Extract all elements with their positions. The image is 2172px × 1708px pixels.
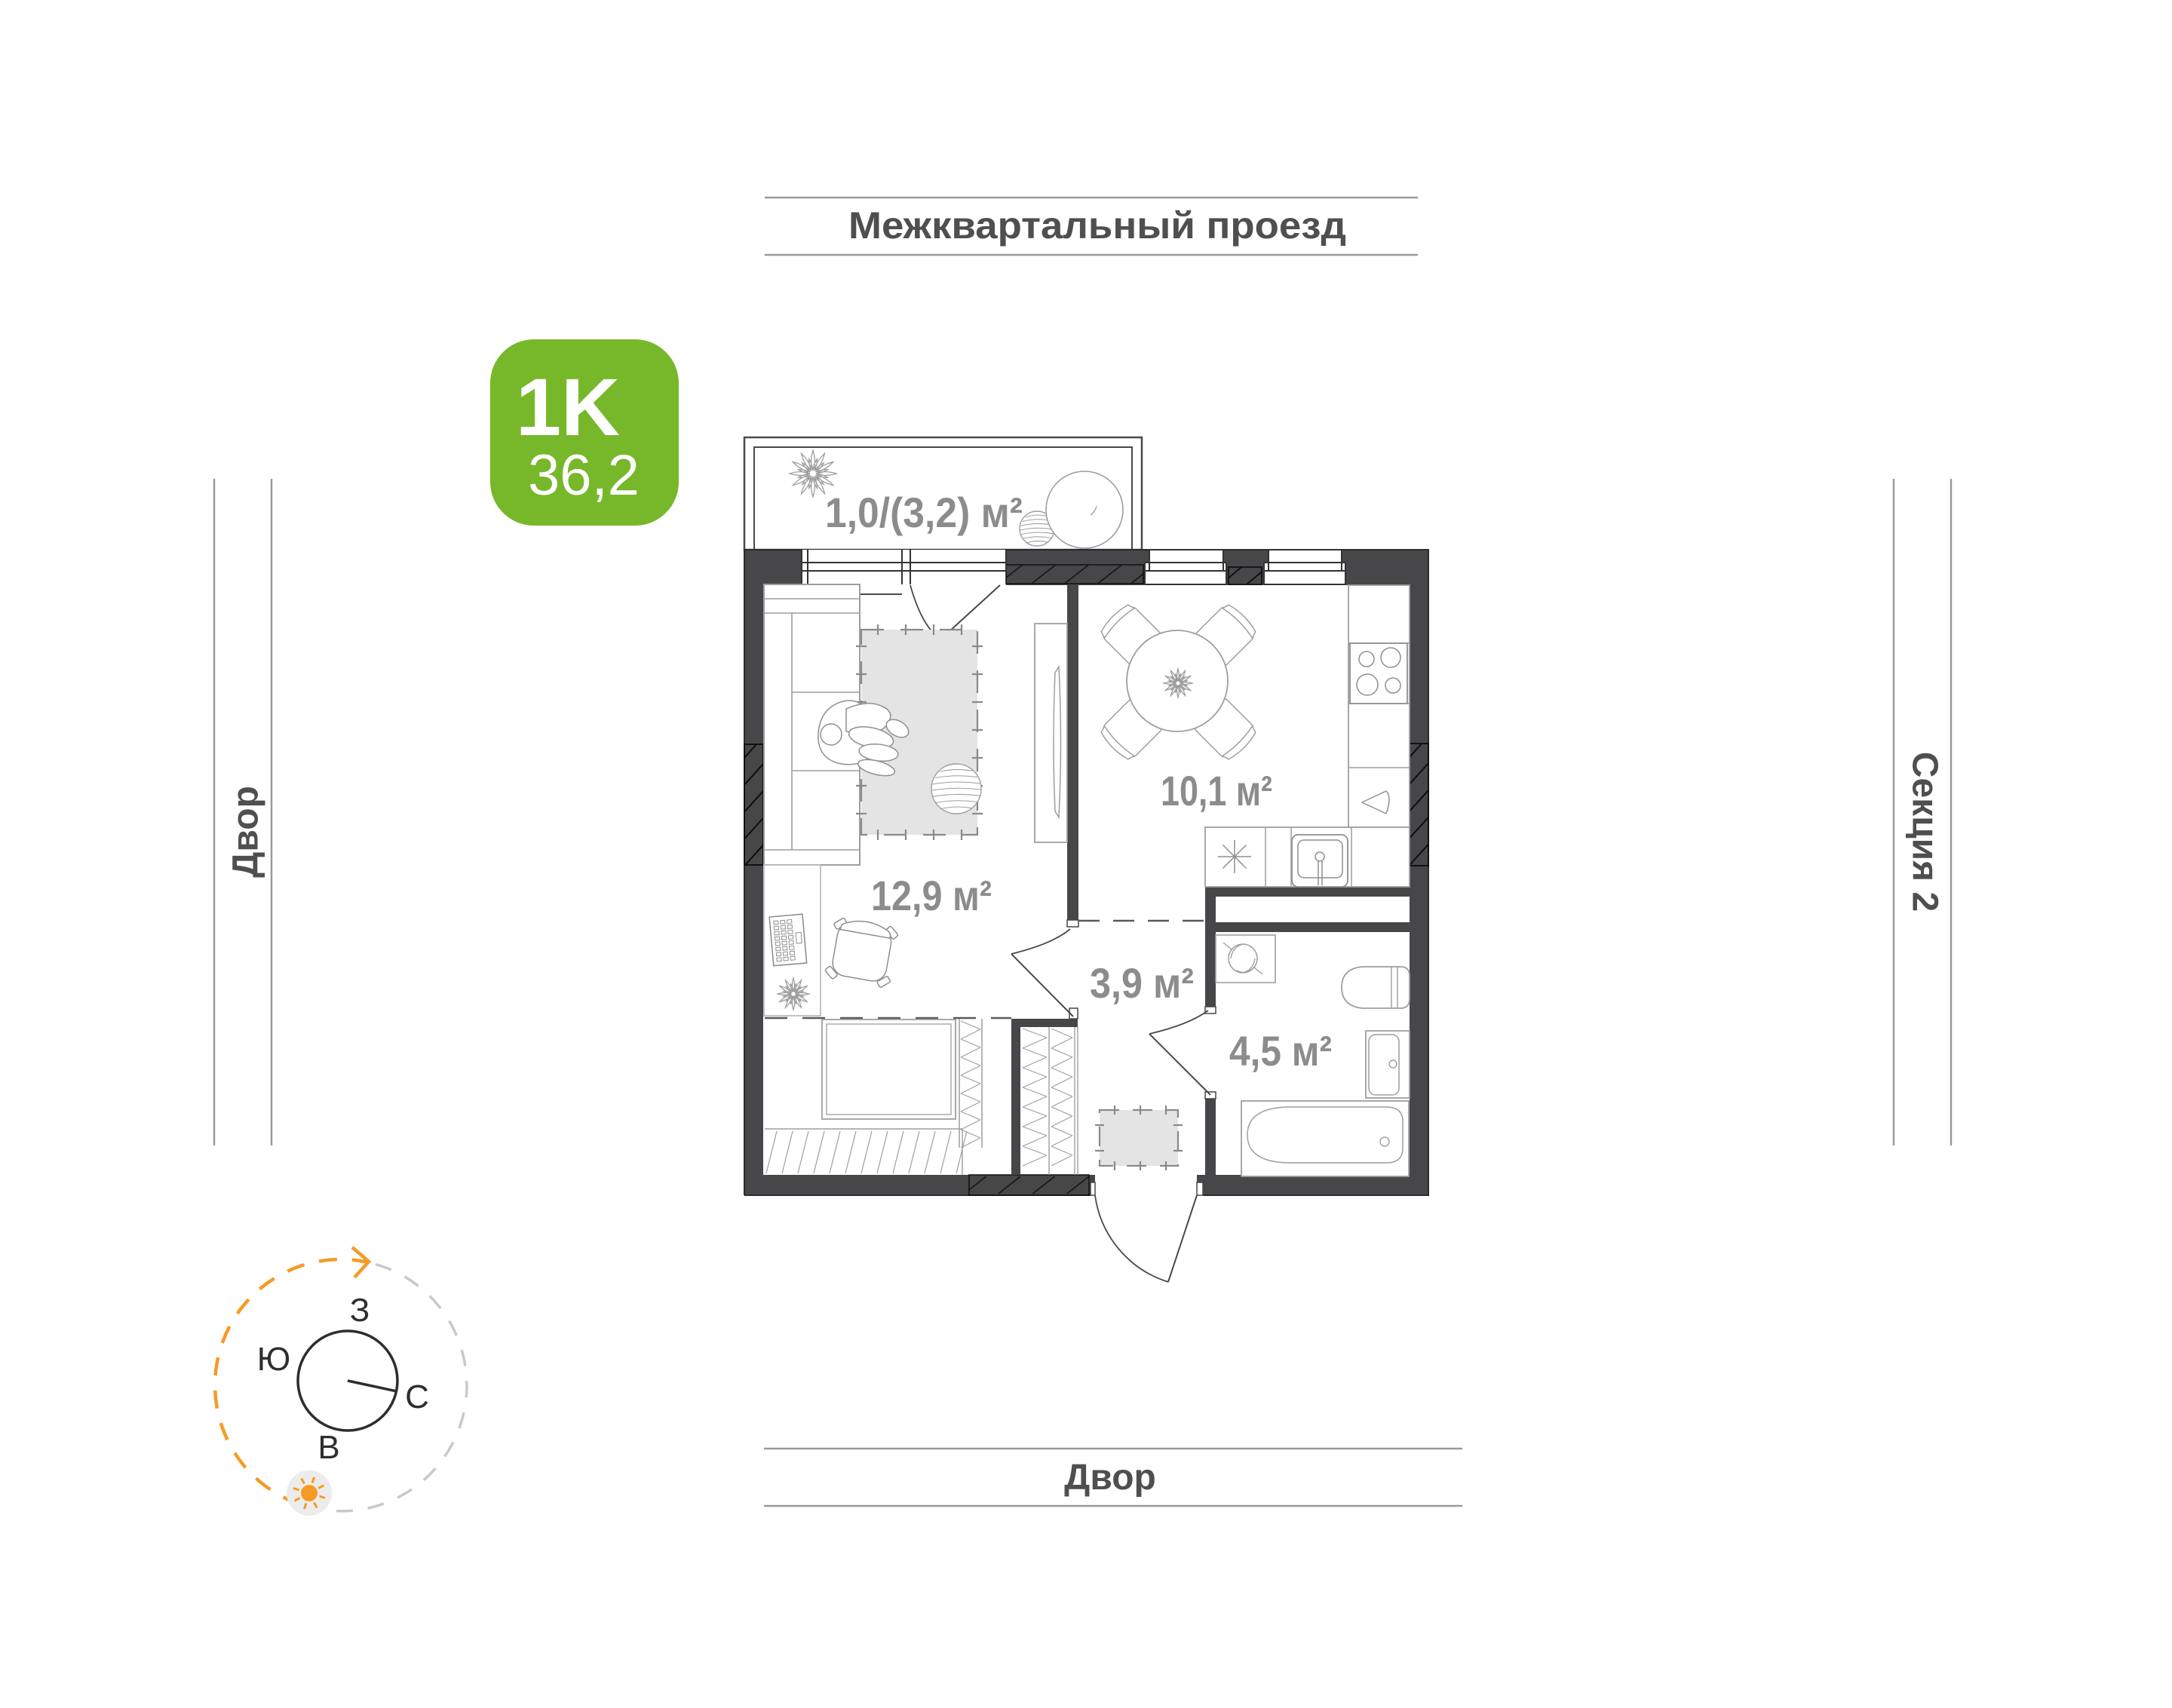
svg-text:36,2: 36,2 <box>528 443 640 507</box>
svg-text:Межквартальный проезд: Межквартальный проезд <box>848 204 1346 247</box>
svg-text:С: С <box>405 1378 429 1415</box>
svg-text:1K: 1K <box>516 361 620 452</box>
svg-text:Ю: Ю <box>257 1341 290 1378</box>
svg-text:В: В <box>318 1429 339 1466</box>
svg-text:3,9 м²: 3,9 м² <box>1090 959 1194 1007</box>
svg-text:Двор: Двор <box>226 786 266 878</box>
svg-text:1,0/(3,2) м²: 1,0/(3,2) м² <box>825 489 1023 536</box>
svg-text:Двор: Двор <box>1064 1458 1156 1498</box>
svg-text:12,9 м²: 12,9 м² <box>871 872 992 919</box>
svg-text:З: З <box>350 1292 370 1329</box>
svg-text:Секция 2: Секция 2 <box>1905 752 1945 912</box>
svg-text:4,5 м²: 4,5 м² <box>1229 1027 1332 1075</box>
svg-text:10,1 м²: 10,1 м² <box>1161 767 1272 814</box>
